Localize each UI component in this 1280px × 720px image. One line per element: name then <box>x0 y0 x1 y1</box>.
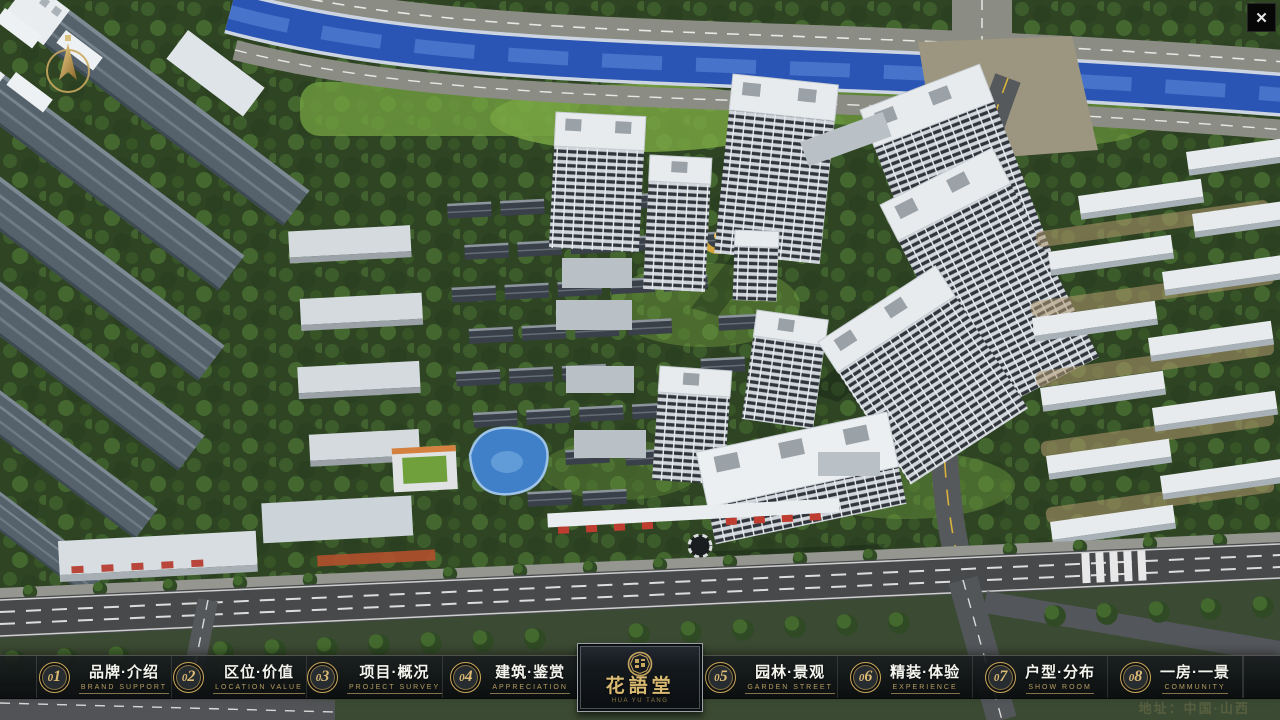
nav-label: 项目·概况 <box>360 661 430 682</box>
nav-sublabel: LOCATION VALUE <box>213 684 305 694</box>
nav-text: 园林·景观 GARDEN STREET <box>745 661 835 694</box>
sales-presentation-window: ✕ 01 品牌·介绍 BRAND SUPPORT 02 区位·价值 LOCATI… <box>0 0 1280 720</box>
nav-label: 园林·景观 <box>755 661 825 682</box>
project-logo-panel[interactable]: 花語堂 HUA YU TANG <box>577 643 703 712</box>
nav-number-badge: 06 <box>850 662 881 693</box>
nav-number: 01 <box>48 669 62 685</box>
nav-number: 02 <box>182 669 196 685</box>
nav-text: 户型·分布 SHOW ROOM <box>1025 661 1095 694</box>
nav-item-location-value[interactable]: 02 区位·价值 LOCATION VALUE <box>172 656 307 698</box>
nav-item-decor-experience[interactable]: 06 精装·体验 EXPERIENCE <box>838 656 973 698</box>
nav-label: 户型·分布 <box>1025 661 1095 682</box>
nav-number-badge: 04 <box>450 662 481 693</box>
nav-sublabel: APPRECIATION <box>490 684 570 694</box>
nav-item-project-survey[interactable]: 03 项目·概况 PROJECT SURVEY <box>307 656 443 698</box>
compass-icon <box>40 34 96 100</box>
nav-item-architecture[interactable]: 04 建筑·鉴赏 APPRECIATION <box>443 656 577 698</box>
nav-text: 项目·概况 PROJECT SURVEY <box>347 661 442 694</box>
nav-sublabel: SHOW ROOM <box>1026 684 1094 694</box>
nav-item-floorplan-distribution[interactable]: 07 户型·分布 SHOW ROOM <box>973 656 1108 698</box>
nav-number: 05 <box>714 669 728 685</box>
project-address: 地址：中国·山西 <box>1139 698 1250 717</box>
landscape-pond <box>470 428 548 495</box>
nav-text: 区位·价值 LOCATION VALUE <box>213 661 305 694</box>
close-button[interactable]: ✕ <box>1247 3 1276 32</box>
project-logo-title: 花語堂 <box>606 677 675 697</box>
nav-label: 区位·价值 <box>224 661 294 682</box>
project-logo-subtitle: HUA YU TANG <box>612 698 669 704</box>
nav-number: 07 <box>994 669 1008 685</box>
nav-text: 建筑·鉴赏 APPRECIATION <box>490 661 570 694</box>
navbar-left-spacer <box>0 656 37 698</box>
masterplan-canvas <box>0 0 1280 720</box>
nav-sublabel: COMMUNITY <box>1162 684 1227 694</box>
nav-item-garden-landscape[interactable]: 05 园林·景观 GARDEN STREET <box>703 656 838 698</box>
nav-number-badge: 01 <box>39 662 70 693</box>
nav-number: 06 <box>859 669 873 685</box>
nav-sublabel: EXPERIENCE <box>891 684 960 694</box>
nav-number: 08 <box>1129 669 1143 685</box>
nav-number-badge: 02 <box>173 662 204 693</box>
logo-seal-icon <box>627 651 653 677</box>
navbar-right-spacer <box>1243 656 1280 698</box>
nav-number: 03 <box>316 669 330 685</box>
nav-number-badge: 08 <box>1120 662 1151 693</box>
nav-text: 品牌·介绍 BRAND SUPPORT <box>79 661 169 694</box>
nav-sublabel: BRAND SUPPORT <box>79 684 169 694</box>
nav-text: 一房·一景 COMMUNITY <box>1160 661 1230 694</box>
nav-number-badge: 05 <box>705 662 736 693</box>
nav-text: 精装·体验 EXPERIENCE <box>890 661 960 694</box>
nav-number: 04 <box>459 669 473 685</box>
entrance-plaza-circle <box>689 535 711 557</box>
nav-label: 建筑·鉴赏 <box>495 661 565 682</box>
nav-sublabel: PROJECT SURVEY <box>347 684 442 694</box>
nav-item-brand-intro[interactable]: 01 品牌·介绍 BRAND SUPPORT <box>37 656 172 698</box>
nav-item-room-view[interactable]: 08 一房·一景 COMMUNITY <box>1108 656 1243 698</box>
bottom-navigation-bar: 01 品牌·介绍 BRAND SUPPORT 02 区位·价值 LOCATION… <box>0 655 1280 699</box>
nav-label: 精装·体验 <box>890 661 960 682</box>
nav-label: 品牌·介绍 <box>89 661 159 682</box>
nav-number-badge: 07 <box>985 662 1016 693</box>
masterplan-render[interactable] <box>0 0 1280 720</box>
nav-number-badge: 03 <box>307 662 338 693</box>
nav-label: 一房·一景 <box>1160 661 1230 682</box>
nav-sublabel: GARDEN STREET <box>745 684 835 694</box>
